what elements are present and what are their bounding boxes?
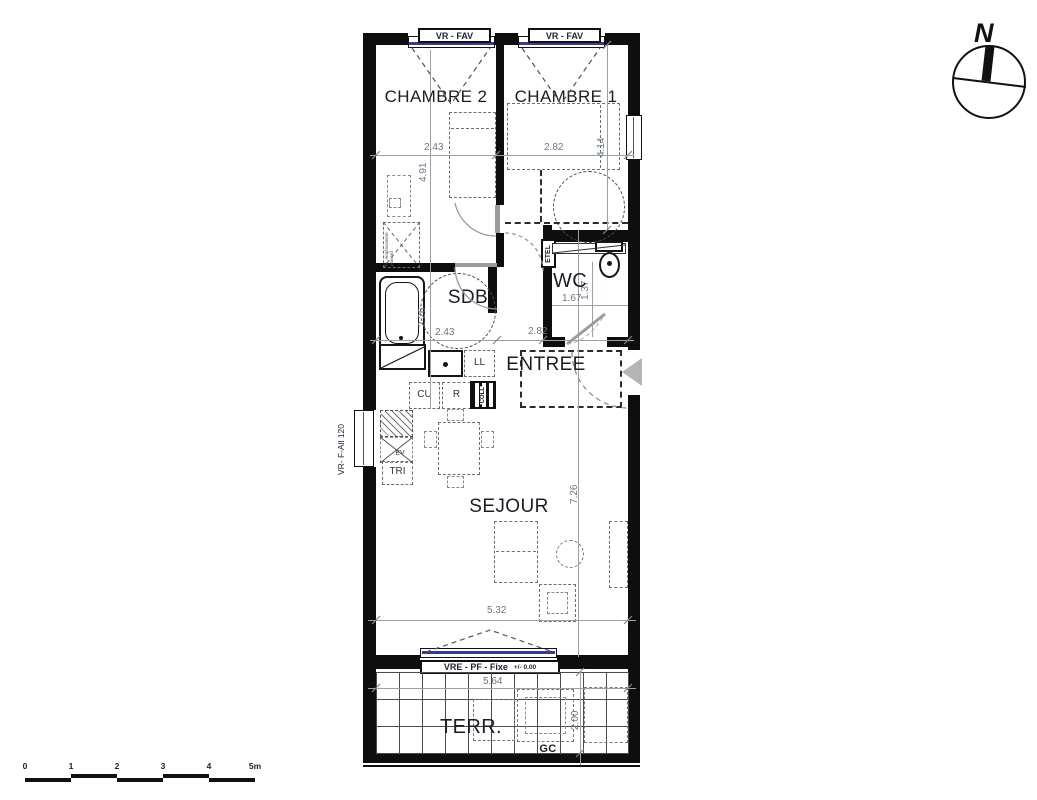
window-frame (354, 410, 374, 467)
side-table-inner (547, 592, 568, 614)
dim-chambre2-depth: 4.91 (418, 150, 429, 182)
dim-wc-width: 1.67 (562, 293, 581, 304)
tv-unit (609, 521, 628, 588)
sofa (494, 521, 538, 583)
chair (481, 431, 494, 448)
wall (363, 33, 408, 45)
window-label-chambre1: VR - FAV (528, 28, 601, 43)
scale-tick: 4 (199, 761, 219, 771)
terrace-chair (584, 687, 628, 743)
terrace-table-inner (525, 697, 566, 734)
window-glazing (363, 412, 364, 465)
dimension-line (370, 155, 634, 156)
bed-chambre2-pillow-line (451, 128, 494, 129)
dimension-line (370, 340, 634, 341)
dim-entree-width: 2.82 (528, 326, 547, 337)
washbasin-tap (443, 362, 448, 367)
toilet-flush (607, 261, 612, 266)
chambre1-partition-dash (540, 170, 542, 222)
dim-sdb-width: 2.43 (435, 327, 454, 338)
door-leaf-chambre2 (495, 205, 500, 233)
wall (496, 233, 504, 267)
fridge-label: R (442, 389, 471, 400)
door-arc-chambre1 (505, 233, 543, 271)
window-glazing (422, 651, 555, 654)
dim-terrasse-width: 5.64 (483, 676, 502, 687)
wall (628, 395, 640, 763)
sink-label: EV (390, 450, 410, 457)
window-glazing (633, 117, 634, 158)
dim-sdb-depth: 2.26 (417, 295, 428, 327)
wall (607, 337, 628, 347)
dim-chambre1-width: 2.82 (544, 142, 563, 153)
room-label-sdb: SDB (438, 287, 498, 309)
dining-table (438, 422, 480, 475)
waste-sorting-label: TRI (382, 466, 413, 477)
wall (363, 45, 376, 410)
scale-segment (71, 774, 117, 778)
compass-north-label: N (974, 18, 994, 49)
wall (363, 672, 376, 763)
scale-segment (209, 778, 255, 782)
hob (380, 410, 413, 437)
scale-tick: 0 (15, 761, 35, 771)
scale-tick: 1 (61, 761, 81, 771)
toilet-tank (595, 241, 623, 252)
level-marker: +/- 0.00 (514, 664, 536, 671)
dimension-line (552, 305, 628, 306)
window-frame (626, 115, 642, 160)
sofa-cushion-line (496, 551, 536, 552)
dim-chambre1-depth: 4.14 (596, 125, 607, 157)
window-label-text: VRE - PF - Fixe (444, 662, 508, 672)
closet-note: PL emplacement placard (384, 224, 394, 266)
coll-duct: COLL (470, 381, 496, 409)
chambre1-threshold-dash (505, 222, 628, 224)
turning-circle-chambre1 (553, 171, 625, 243)
kitchen-unit-cu-label: CU (409, 389, 440, 400)
dim-sejour-depth: 7.26 (569, 472, 580, 504)
washing-machine-label: LL (464, 357, 495, 368)
wardrobe-chambre2 (387, 175, 411, 217)
scale-segment (117, 778, 163, 782)
etel-label: ETEL (545, 245, 552, 263)
wall (363, 467, 376, 672)
dim-sejour-width: 5.32 (487, 605, 506, 616)
wall (376, 655, 420, 669)
compass-chord (953, 78, 1026, 87)
scale-tick: 3 (153, 761, 173, 771)
wall (363, 753, 640, 763)
dimension-line (592, 262, 593, 337)
wardrobe-chambre2-inner (389, 198, 401, 208)
dim-terrasse-depth: 2.00 (570, 698, 581, 730)
room-label-wc: WC (548, 270, 592, 293)
scale-segment (25, 778, 71, 782)
chair (447, 476, 464, 488)
chair (424, 431, 437, 448)
turning-circle-sdb (420, 273, 496, 349)
coll-duct-label: COLL (480, 386, 486, 404)
dimension-line (368, 620, 636, 621)
corner-cabinet (379, 344, 426, 370)
scale-tick: 2 (107, 761, 127, 771)
wall (543, 337, 565, 347)
room-label-entree: ENTREE (506, 354, 586, 376)
wall (557, 655, 628, 669)
chair (447, 409, 464, 421)
dimension-line (368, 688, 636, 689)
bathtub-inner (385, 282, 419, 344)
wall (496, 45, 504, 205)
entrance-arrow (622, 358, 642, 386)
wall (495, 33, 518, 45)
window-label-kitchen: VR- F-All 120 (336, 405, 346, 475)
coffee-table (556, 540, 584, 568)
label-gc: GC (536, 743, 560, 755)
room-label-chambre1: CHAMBRE 1 (504, 87, 628, 107)
compass-needle (986, 46, 990, 81)
window-label-text: VR - FAV (546, 31, 583, 41)
floor-plan: VR - FAV VR - FAV VR- F-All 120 VRE - PF… (0, 0, 1037, 800)
room-label-sejour: SEJOUR (449, 496, 569, 518)
door-leaf-sdb (455, 263, 497, 267)
wall (628, 160, 640, 350)
window-label-text: VR - FAV (436, 31, 473, 41)
room-label-terrasse: TERR. (421, 716, 521, 739)
compass-circle (953, 46, 1025, 118)
dimension-line (607, 45, 608, 230)
door-arc-chambre2 (455, 203, 496, 236)
scale-bar: 0 1 2 3 4 5m (0, 755, 280, 795)
bottom-edge-line (363, 765, 640, 767)
scale-tick: 5m (245, 761, 265, 771)
room-label-chambre2: CHAMBRE 2 (376, 87, 496, 107)
wall (628, 33, 640, 115)
window-label-chambre2: VR - FAV (418, 28, 491, 43)
scale-segment (163, 774, 209, 778)
